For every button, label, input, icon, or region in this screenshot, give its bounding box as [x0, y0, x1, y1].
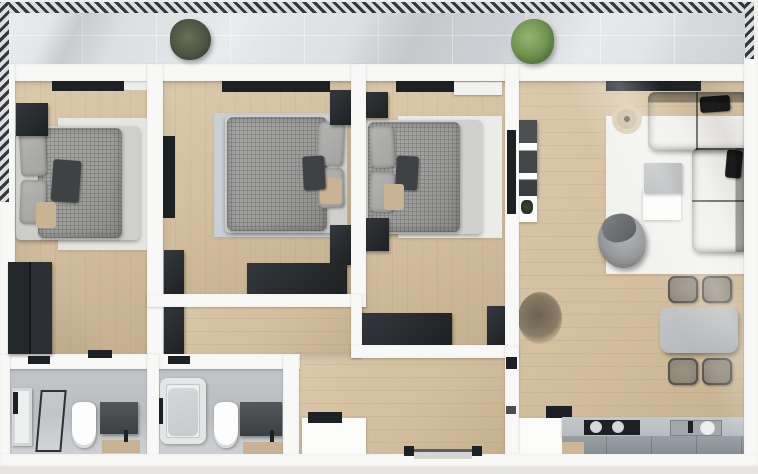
bedroom1-nightstand — [16, 103, 48, 136]
shower-fixtures-icon — [13, 392, 18, 414]
balcony-railing-left — [0, 2, 9, 202]
bedroom3-throw — [384, 184, 404, 210]
wall-bed3-bottom — [351, 345, 519, 358]
bedroom1-door-threshold — [88, 350, 112, 358]
toilet — [72, 402, 96, 448]
pot-icon — [590, 421, 602, 433]
bedroom1-window-sill — [124, 80, 148, 90]
living-door-hinge — [506, 406, 516, 414]
bedroom3-pillow — [369, 125, 395, 168]
kitchen-white-cabinet — [518, 418, 562, 456]
dining-chair — [702, 276, 732, 303]
kitchen-counter-front — [562, 436, 744, 456]
bedroom2-dresser — [247, 263, 347, 295]
wall-bed2-bed3 — [351, 64, 366, 306]
wall-bath2-right — [283, 354, 299, 456]
bedroom3-wall-tv-panel — [507, 130, 516, 214]
pot-icon — [612, 421, 624, 433]
wall-top — [0, 64, 758, 81]
bedroom1-cushion — [51, 159, 82, 203]
shelf-plant-icon — [521, 200, 533, 214]
side-table-top — [644, 163, 682, 193]
potted-plant-dark-icon — [170, 19, 211, 60]
bathtub-interior — [168, 388, 198, 436]
bathroom2-vanity-shelf — [243, 442, 285, 454]
wall-bottom — [0, 454, 758, 466]
toilet — [214, 402, 238, 448]
hallway-shoe-cabinet — [302, 418, 366, 456]
balcony-floor — [8, 11, 748, 66]
outside-ground-bottom — [0, 466, 758, 474]
corner-sofa-top — [648, 92, 748, 150]
wall-bed1-bed2 — [147, 64, 163, 356]
bedroom2-nightstand-top — [330, 90, 352, 125]
bathroom1-vanity — [100, 402, 138, 434]
bedroom3-nightstand-bottom — [362, 218, 389, 251]
living-door-hinge — [506, 357, 517, 369]
faucet-icon — [270, 430, 274, 442]
bedroom1-throw — [36, 202, 56, 228]
bathroom2-door-threshold — [168, 356, 190, 364]
entry-door — [414, 449, 472, 459]
wall-bath-divider — [147, 354, 159, 456]
shower-glass-screen — [35, 390, 66, 452]
hallway-tall-cabinet — [164, 302, 184, 356]
bedroom3-wall-shelf — [454, 82, 502, 95]
wall-bath1-left — [0, 354, 10, 456]
bathroom1-vanity-shelf — [102, 440, 140, 453]
shoe-cabinet-decor — [308, 412, 342, 423]
bathroom2-vanity — [240, 402, 282, 436]
wall-right — [744, 56, 758, 456]
faucet-icon — [124, 430, 128, 442]
bedroom2-cushion — [302, 155, 326, 190]
faucet-icon — [688, 421, 693, 433]
bathroom1-door-threshold — [28, 356, 50, 364]
dining-chair — [668, 276, 698, 303]
bedroom2-corner-cabinet — [164, 250, 184, 297]
round-floor-decor — [612, 104, 642, 134]
bedroom2-tv-panel — [163, 136, 175, 218]
entry-door-jamb — [472, 446, 482, 456]
potted-plant-green-icon — [511, 19, 554, 64]
balcony-railing-top — [6, 2, 752, 13]
corner-sofa-right — [692, 148, 748, 252]
bedroom1-pillow — [19, 131, 47, 176]
balcony-railing-right — [745, 2, 754, 59]
bedroom3-dresser — [360, 313, 452, 346]
bedroom2-nightstand-bottom — [330, 225, 352, 265]
floor-plan-render — [0, 0, 758, 474]
living-wall-shelf — [517, 120, 537, 196]
dining-chair — [668, 358, 698, 385]
wall-bed2-bottom — [147, 294, 366, 307]
entry-door-jamb — [404, 446, 414, 456]
dining-table — [660, 307, 738, 353]
dry-plant-icon — [518, 292, 562, 344]
dining-chair — [702, 358, 732, 385]
bedroom1-wardrobe — [8, 262, 52, 354]
sink-basin-icon — [700, 421, 715, 435]
